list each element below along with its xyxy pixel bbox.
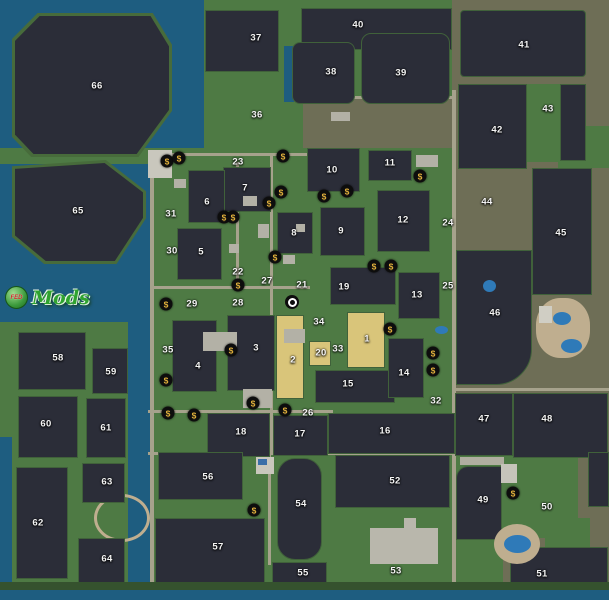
field-47[interactable]: [455, 393, 513, 456]
pond: [561, 339, 582, 353]
pond: [553, 312, 571, 325]
field-38[interactable]: [292, 42, 355, 104]
field-label-50: 50: [541, 502, 552, 513]
fedmods-badge-icon: FED: [5, 286, 28, 309]
building: [501, 464, 517, 483]
sell-point-icon[interactable]: $: [277, 150, 290, 163]
sell-point-icon[interactable]: $: [414, 170, 427, 183]
sell-point-icon[interactable]: $: [263, 197, 276, 210]
field-label-6: 6: [204, 197, 210, 208]
road: [150, 150, 154, 588]
building: [416, 155, 438, 167]
field-label-22: 22: [232, 267, 243, 278]
sell-point-icon[interactable]: $: [232, 279, 245, 292]
field-label-3: 3: [253, 343, 259, 354]
field-label-32: 32: [430, 396, 441, 407]
field-label-10: 10: [326, 165, 337, 176]
field-4[interactable]: [172, 320, 217, 392]
field-label-8: 8: [291, 228, 297, 239]
field-label-53: 53: [390, 566, 401, 577]
field-label-38: 38: [325, 67, 336, 78]
field-label-57: 57: [212, 542, 223, 553]
building: [296, 224, 305, 232]
field-label-52: 52: [389, 476, 400, 487]
field-label-43: 43: [542, 104, 553, 115]
field-label-24: 24: [442, 218, 453, 229]
field-label-58: 58: [52, 353, 63, 364]
sell-point-icon[interactable]: $: [160, 298, 173, 311]
field-unlabeled[interactable]: [588, 452, 609, 507]
sell-point-icon[interactable]: $: [427, 364, 440, 377]
field-label-44: 44: [481, 197, 492, 208]
field-label-66: 66: [91, 81, 102, 92]
field-label-30: 30: [166, 246, 177, 257]
sell-point-icon[interactable]: $: [384, 323, 397, 336]
sell-point-icon[interactable]: $: [160, 374, 173, 387]
field-label-28: 28: [232, 298, 243, 309]
building: [370, 528, 438, 564]
field-label-59: 59: [105, 367, 116, 378]
sell-point-icon[interactable]: $: [227, 211, 240, 224]
sell-point-icon[interactable]: $: [162, 407, 175, 420]
field-15[interactable]: [315, 370, 395, 403]
field-label-13: 13: [411, 290, 422, 301]
sell-point-icon[interactable]: $: [188, 409, 201, 422]
field-label-49: 49: [477, 495, 488, 506]
field-label-11: 11: [385, 158, 396, 169]
field-unlabeled[interactable]: [560, 84, 586, 161]
field-label-42: 42: [491, 125, 502, 136]
building: [404, 518, 416, 530]
field-37[interactable]: [205, 10, 279, 72]
road: [455, 388, 609, 391]
fedmods-logo-text: Mods: [32, 287, 90, 309]
pond: [435, 326, 448, 334]
field-56[interactable]: [158, 452, 243, 500]
sell-point-icon[interactable]: $: [269, 251, 282, 264]
field-label-26: 26: [302, 408, 313, 419]
station-ring: [288, 298, 297, 307]
field-label-15: 15: [342, 379, 353, 390]
field-label-17: 17: [294, 429, 305, 440]
field-label-60: 60: [40, 419, 51, 430]
field-label-18: 18: [235, 427, 246, 438]
field-label-47: 47: [478, 414, 489, 425]
field-label-12: 12: [397, 215, 408, 226]
pond: [504, 535, 531, 553]
sell-point-icon[interactable]: $: [279, 404, 292, 417]
water-left-edge: [0, 437, 12, 589]
field-label-2: 2: [290, 355, 296, 366]
field-label-36: 36: [251, 110, 262, 121]
road: [150, 286, 310, 289]
building: [539, 306, 552, 323]
field-label-16: 16: [379, 426, 390, 437]
fedmods-logo: FED Mods: [5, 286, 90, 309]
field-label-1: 1: [364, 334, 370, 345]
building: [243, 196, 257, 206]
field-label-54: 54: [295, 499, 306, 510]
field-label-4: 4: [195, 361, 201, 372]
water-bottom-strip: [0, 589, 609, 600]
station-icon[interactable]: [285, 295, 299, 309]
field-label-48: 48: [541, 414, 552, 425]
field-label-29: 29: [186, 299, 197, 310]
sell-point-icon[interactable]: $: [427, 347, 440, 360]
field-label-62: 62: [32, 518, 43, 529]
grass-strip-field43: [527, 84, 560, 162]
field-label-14: 14: [398, 368, 409, 379]
field-label-55: 55: [297, 568, 308, 579]
field-label-51: 51: [536, 569, 547, 580]
field-label-19: 19: [338, 282, 349, 293]
field-label-31: 31: [165, 209, 176, 220]
field-label-45: 45: [555, 228, 566, 239]
sell-point-icon[interactable]: $: [318, 190, 331, 203]
field-16[interactable]: [328, 413, 455, 454]
building: [229, 244, 239, 253]
field-label-37: 37: [250, 33, 261, 44]
building: [284, 329, 305, 343]
field-label-40: 40: [352, 20, 363, 31]
sell-point-icon[interactable]: $: [173, 152, 186, 165]
field-label-35: 35: [162, 345, 173, 356]
sell-point-icon[interactable]: $: [341, 185, 354, 198]
field-label-27: 27: [261, 276, 272, 287]
field-label-63: 63: [101, 477, 112, 488]
building: [460, 457, 504, 465]
building: [258, 224, 269, 238]
field-label-34: 34: [313, 317, 324, 328]
field-48[interactable]: [513, 393, 608, 458]
field-label-64: 64: [101, 554, 112, 565]
sell-point-icon[interactable]: $: [385, 260, 398, 273]
grass-east-field50: [545, 518, 590, 550]
sell-point-icon[interactable]: $: [248, 504, 261, 517]
field-label-56: 56: [202, 472, 213, 483]
field-label-33: 33: [332, 344, 343, 355]
sell-point-icon[interactable]: $: [275, 186, 288, 199]
map-container: FED Mods 6665374038394136424345231011127…: [0, 0, 609, 600]
field-label-61: 61: [100, 423, 111, 434]
tree-strip-bottom: [0, 582, 609, 590]
building: [283, 255, 295, 264]
field-label-46: 46: [489, 308, 500, 319]
sell-point-icon[interactable]: $: [247, 397, 260, 410]
field-label-65: 65: [72, 206, 83, 217]
field-label-21: 21: [296, 280, 307, 291]
sell-point-icon[interactable]: $: [507, 487, 520, 500]
building: [258, 459, 267, 465]
field-label-20: 20: [315, 348, 326, 359]
field-label-41: 41: [518, 40, 529, 51]
field-label-7: 7: [242, 183, 248, 194]
field-label-25: 25: [442, 281, 453, 292]
pond: [483, 280, 496, 292]
building: [174, 179, 186, 188]
field-label-9: 9: [338, 226, 344, 237]
building: [331, 112, 350, 121]
sell-point-icon[interactable]: $: [225, 344, 238, 357]
field-label-23: 23: [232, 157, 243, 168]
field-57[interactable]: [155, 518, 265, 586]
sell-point-icon[interactable]: $: [368, 260, 381, 273]
field-label-5: 5: [198, 247, 204, 258]
field-label-39: 39: [395, 68, 406, 79]
